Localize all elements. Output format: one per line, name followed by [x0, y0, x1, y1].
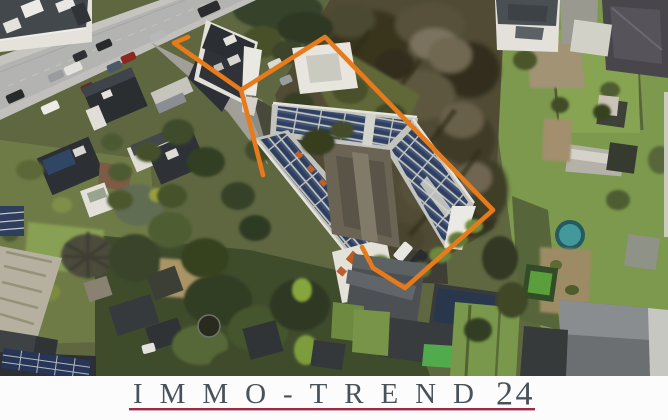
svg-text:IMMO-TREND: IMMO-TREND: [133, 378, 482, 410]
svg-text:24: 24: [496, 376, 535, 413]
